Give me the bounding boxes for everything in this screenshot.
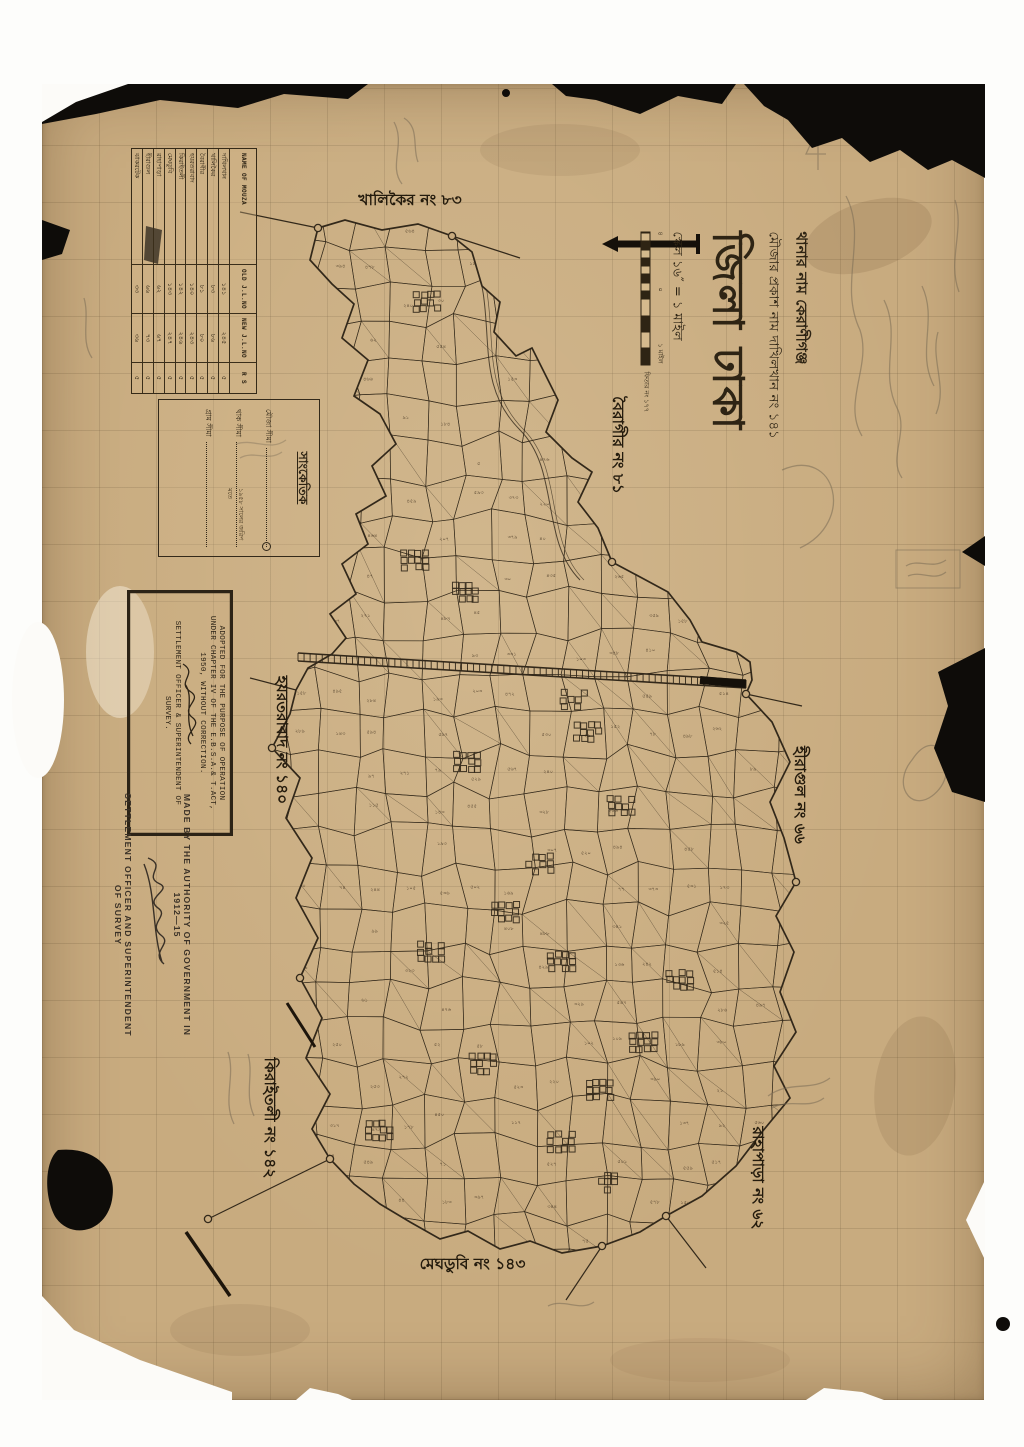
svg-text:৫৩১: ৫৩১ bbox=[687, 884, 697, 890]
svg-text:১৩৭: ১৩৭ bbox=[679, 1120, 689, 1126]
svg-text:৫৫৪: ৫৫৪ bbox=[436, 344, 446, 350]
svg-text:৫৫৯: ৫৫৯ bbox=[642, 694, 652, 700]
svg-text:৪৮৮: ৪৮৮ bbox=[540, 931, 550, 937]
svg-text:৩৯৭: ৩৯৭ bbox=[474, 1195, 484, 1201]
svg-text:৪২৯: ৪২৯ bbox=[538, 965, 548, 971]
table-cell: ঝাকরটেক bbox=[132, 149, 142, 264]
svg-text:১৫৬: ১৫৬ bbox=[265, 1274, 275, 1280]
legend-item: থাক সীমা১৯৫৮ সালের জরিপ মতে bbox=[231, 409, 243, 547]
table-cell: ৫ bbox=[186, 362, 196, 393]
svg-text:১০২: ১০২ bbox=[584, 1041, 594, 1047]
table-cell: খালিকৈর bbox=[208, 149, 218, 264]
table-cell: বৈরাগীর bbox=[197, 149, 207, 264]
svg-text:৫২: ৫২ bbox=[434, 1042, 441, 1048]
svg-text:১০৯: ১০৯ bbox=[612, 1036, 622, 1042]
svg-text:৫২৩: ৫২৩ bbox=[513, 1084, 523, 1090]
svg-text:৪৭৬: ৪৭৬ bbox=[540, 457, 550, 463]
table-cell: ৫ bbox=[165, 362, 175, 393]
svg-text:৩৬৩: ৩৬৩ bbox=[821, 885, 832, 891]
svg-text:৪৯৫: ৪৯৫ bbox=[332, 689, 342, 695]
svg-text:৪৭৬: ৪৭৬ bbox=[824, 418, 834, 424]
svg-text:১৭৮: ১৭৮ bbox=[404, 1125, 414, 1131]
legend-circle-symbol bbox=[263, 542, 272, 551]
svg-text:২৮৯: ২৮৯ bbox=[295, 728, 305, 734]
svg-text:৫৭৬: ৫৭৬ bbox=[304, 218, 314, 224]
svg-text:৩৯৪: ৩৯৪ bbox=[336, 263, 346, 269]
svg-text:১১৭: ১১৭ bbox=[511, 1120, 521, 1126]
svg-text:৫৬৭: ৫৬৭ bbox=[507, 767, 517, 773]
svg-text:৫০১: ৫০১ bbox=[617, 1159, 627, 1165]
table-cell: ৫ bbox=[176, 362, 186, 393]
svg-text:৫১০: ৫১০ bbox=[608, 302, 618, 308]
table-row: কিরাইতলী১৪২২৪৬৫ bbox=[176, 149, 187, 393]
table-cell: ৫ bbox=[197, 362, 207, 393]
neighbor-label-north: খালিকৈর নং ৮৩ bbox=[330, 188, 490, 214]
svg-text:৬২: ৬২ bbox=[370, 338, 377, 344]
svg-text:৪৬৬: ৪৬৬ bbox=[363, 376, 373, 382]
neighbor-label-southwest: কিরাইতলী নং ১৪২ bbox=[258, 1053, 282, 1183]
svg-text:৩০: ৩০ bbox=[504, 576, 511, 582]
authority-signature bbox=[138, 850, 172, 980]
table-cell: ১৪১ bbox=[219, 264, 229, 313]
svg-text:২১০: ২১০ bbox=[509, 227, 519, 233]
svg-text:৫৯০: ৫৯০ bbox=[825, 294, 835, 300]
legend-item: মৌজা সীমা bbox=[261, 409, 273, 547]
svg-text:৪৫০: ৪৫০ bbox=[434, 1112, 444, 1118]
svg-text:৪৩৫: ৪৩৫ bbox=[546, 573, 556, 579]
district-title: জিলা ঢাকা bbox=[689, 232, 760, 532]
svg-text:৫৬১: ৫৬১ bbox=[333, 1276, 343, 1282]
svg-text:৩৯০: ৩৯০ bbox=[788, 531, 798, 537]
svg-text:৫৯৪: ৫৯৪ bbox=[366, 730, 376, 736]
svg-text:২৪৪: ২৪৪ bbox=[370, 887, 380, 893]
svg-text:১১৮: ১১৮ bbox=[269, 376, 279, 382]
svg-text:১৪৩: ১৪৩ bbox=[435, 809, 445, 815]
legend-item-line bbox=[207, 442, 208, 547]
legend-item-line bbox=[267, 448, 268, 547]
svg-text:৫: ৫ bbox=[477, 461, 480, 467]
svg-text:৫৪৮: ৫৪৮ bbox=[757, 1239, 767, 1245]
svg-text:৪০: ৪০ bbox=[539, 536, 546, 542]
svg-text:১৫৪: ১৫৪ bbox=[714, 615, 724, 621]
stamp-line-1: ADOPTED FOR THE PURPOSE OF OPERATION bbox=[216, 596, 225, 830]
table-cell: ৫ bbox=[208, 362, 218, 393]
table-cell: ২৪৩ bbox=[186, 313, 196, 362]
mouza-table-block: NAME OF MOUZAOLD J.L.NONEW J.L.NOR Sদাখি… bbox=[133, 148, 257, 392]
svg-text:১২১: ১২১ bbox=[261, 846, 271, 852]
table-cell: হীরাগুল bbox=[143, 149, 153, 264]
svg-text:৮৮: ৮৮ bbox=[260, 964, 267, 970]
svg-text:২৪২: ২৪২ bbox=[642, 961, 652, 967]
legend-item-label: থাক সীমা bbox=[231, 409, 243, 437]
svg-text:৪৮৭: ৪৮৭ bbox=[441, 616, 451, 622]
svg-text:৪৯৭: ৪৯৭ bbox=[756, 1003, 766, 1009]
svg-text:৯২: ৯২ bbox=[818, 380, 825, 386]
table-cell: রাহাপাড়া bbox=[154, 149, 164, 264]
svg-text:৫৪৭: ৫৪৭ bbox=[617, 1000, 627, 1006]
svg-text:৫৩০: ৫৩০ bbox=[542, 732, 552, 738]
svg-text:৯১: ৯১ bbox=[402, 415, 409, 421]
svg-text:৫২৯: ৫২৯ bbox=[471, 777, 481, 783]
svg-text:১৫৩: ১৫৩ bbox=[508, 377, 518, 383]
svg-text:২৬৫: ২৬৫ bbox=[614, 574, 624, 580]
table-row: মেঘডুবি১৪৩২৪৭৫ bbox=[165, 149, 176, 393]
table-cell: ৮৩ bbox=[208, 264, 218, 313]
svg-text:১৩৬: ১৩৬ bbox=[614, 962, 624, 968]
svg-text:৫২৭: ৫২৭ bbox=[547, 1162, 557, 1168]
svg-text:৫১৪: ৫১৪ bbox=[719, 691, 729, 697]
legend-box: সাংকেতিক মৌজা সীমাথাক সীমা১৯৫৮ সালের জরি… bbox=[158, 399, 320, 557]
svg-text:৪০৮: ৪০৮ bbox=[504, 926, 514, 932]
table-cell: কিরাইতলী bbox=[176, 149, 186, 264]
svg-text:১৫: ১৫ bbox=[299, 1079, 306, 1085]
svg-text:১১২: ১১২ bbox=[328, 566, 338, 572]
svg-text:১৫৮: ১৫৮ bbox=[822, 1088, 832, 1094]
svg-text:২২০: ২২০ bbox=[549, 1079, 559, 1085]
svg-text:৪৬৪: ৪৬৪ bbox=[367, 533, 377, 539]
svg-text:২৫৩: ২৫৩ bbox=[370, 1084, 380, 1090]
svg-text:৪১৯: ৪১৯ bbox=[792, 648, 802, 654]
svg-text:২২০: ২২০ bbox=[540, 501, 550, 507]
svg-text:৩২৮: ৩২৮ bbox=[539, 810, 550, 816]
svg-text:৫৬৫: ৫৬৫ bbox=[611, 336, 621, 342]
svg-text:৪১৫: ৪১৫ bbox=[785, 1156, 795, 1162]
table-header: R S bbox=[230, 362, 256, 393]
svg-text:১৪৬: ১৪৬ bbox=[296, 582, 306, 588]
svg-text:৭৯: ৭৯ bbox=[435, 768, 442, 774]
svg-text:১৬৯: ১৬৯ bbox=[328, 1189, 338, 1195]
table-cell: ১৪৩ bbox=[165, 264, 175, 313]
svg-text:৫৪৯: ৫৪৯ bbox=[363, 1159, 373, 1165]
svg-text:১৩: ১৩ bbox=[680, 576, 687, 582]
legend-title: সাংকেতিক bbox=[291, 409, 311, 547]
neighbor-label-south: মেঘডুবি নং ১৪৩ bbox=[415, 1252, 530, 1278]
legend-item-line: ১৯৫৮ সালের জরিপ মতে bbox=[237, 442, 238, 547]
svg-text:২৭১: ২৭১ bbox=[400, 771, 410, 777]
svg-text:৩৭৪: ৩৭৪ bbox=[260, 218, 270, 224]
table-cell: ৭৩ bbox=[143, 313, 153, 362]
table-cell: হযরতরাবাদ bbox=[186, 149, 196, 264]
svg-text:২৬২: ২৬২ bbox=[712, 726, 722, 732]
scale-caption: স্কেল ১৬″ = ১ মাইল bbox=[666, 232, 687, 532]
svg-text:৫৬৪: ৫৬৪ bbox=[405, 228, 415, 234]
svg-text:২৯৫: ২৯৫ bbox=[332, 302, 342, 308]
svg-text:১৯৩: ১৯৩ bbox=[433, 696, 443, 702]
svg-text:২৭৭: ২৭৭ bbox=[331, 344, 341, 350]
stamp-line-2: UNDER CHAPTER IV OF THE E.B.S.A.& T.ACT, bbox=[206, 596, 215, 830]
svg-text:১৪৩: ১৪৩ bbox=[336, 731, 346, 737]
svg-text:৫৯৩: ৫৯৩ bbox=[474, 490, 484, 496]
svg-text:১৪০: ১৪০ bbox=[299, 924, 309, 930]
svg-text:১৮৯: ১৮৯ bbox=[675, 1042, 685, 1048]
svg-text:৪৭২: ৪৭২ bbox=[505, 691, 515, 697]
svg-text:১১১: ১১১ bbox=[680, 1272, 690, 1278]
svg-text:২৪০: ২৪০ bbox=[543, 769, 553, 775]
svg-text:১৭৩: ১৭৩ bbox=[720, 885, 730, 891]
svg-text:১৭৬: ১৭৬ bbox=[825, 533, 835, 539]
table-cell: ৫ bbox=[154, 362, 164, 393]
svg-text:৪১০: ৪১০ bbox=[645, 647, 655, 653]
svg-text:৩৬৮: ৩৬৮ bbox=[824, 850, 835, 856]
svg-text:৮৯: ৮৯ bbox=[750, 766, 757, 772]
stamp-line-3: 1950, WITHOUT CORRECTION. bbox=[197, 596, 206, 830]
svg-text:৪৯৪: ৪৯৪ bbox=[613, 845, 623, 851]
svg-text:৩৭৩: ৩৭৩ bbox=[509, 495, 520, 501]
svg-text:৫৫৯: ৫৫৯ bbox=[683, 1166, 693, 1172]
svg-text:২৭১: ২৭১ bbox=[361, 613, 371, 619]
table-row: রাহাপাড়া৬২৬৭৫ bbox=[154, 149, 165, 393]
svg-text:৩২৫: ৩২৫ bbox=[719, 921, 729, 927]
svg-text:৩৮৪: ৩৮৪ bbox=[502, 265, 512, 271]
svg-text:৫১৫: ৫১৫ bbox=[261, 304, 271, 310]
svg-text:৯১: ৯১ bbox=[747, 651, 754, 657]
svg-text:৩৩৬: ৩৩৬ bbox=[789, 1001, 800, 1007]
legend-item: গ্রাম সীমা bbox=[201, 409, 213, 547]
svg-text:২০৮: ২০৮ bbox=[437, 1242, 448, 1248]
table-cell: ৫ bbox=[132, 362, 142, 393]
svg-text:৪১৭: ৪১৭ bbox=[787, 611, 797, 617]
svg-text:১৫৮: ১৫৮ bbox=[297, 691, 307, 697]
svg-text:৪০৯: ৪০৯ bbox=[678, 223, 688, 229]
svg-text:৩২৩: ৩২৩ bbox=[405, 968, 416, 974]
svg-text:৩৭৩: ৩৭৩ bbox=[648, 887, 659, 893]
svg-text:২১: ২১ bbox=[717, 1088, 724, 1094]
svg-text:৫৫৭: ৫৫৭ bbox=[506, 297, 516, 303]
svg-text:১৫২: ১৫২ bbox=[611, 724, 621, 730]
svg-text:২৮৯: ২৮৯ bbox=[786, 1080, 796, 1086]
table-header: NEW J.L.NO bbox=[230, 313, 256, 362]
scale-note: ফিতার নং ১৭৭ bbox=[641, 372, 652, 412]
table-cell: ১৪০ bbox=[186, 264, 196, 313]
svg-text:৩১৭: ৩১৭ bbox=[330, 1123, 340, 1129]
table-cell: ৩৩ bbox=[132, 264, 142, 313]
svg-text:৪৭৮: ৪৭৮ bbox=[365, 264, 375, 270]
svg-text:১০: ১০ bbox=[785, 1198, 792, 1204]
svg-text:১৯৯: ১৯৯ bbox=[264, 1037, 274, 1043]
svg-text:২০৯: ২০৯ bbox=[818, 339, 828, 345]
svg-text:১০৫: ১০৫ bbox=[406, 886, 416, 892]
svg-text:৩৮০: ৩৮০ bbox=[717, 1040, 727, 1046]
legend-item-label: গ্রাম সীমা bbox=[201, 409, 213, 437]
svg-text:২০৩: ২০৩ bbox=[472, 689, 483, 695]
svg-text:৫২৮: ৫২৮ bbox=[647, 1274, 657, 1280]
svg-text:৩৫৮: ৩৫৮ bbox=[820, 608, 830, 614]
neighbor-label-southeast: রাহাপাড়া নং ৬২ bbox=[746, 1118, 770, 1238]
svg-text:৪৫৯: ৪৫৯ bbox=[407, 498, 417, 504]
svg-text:৪৯৫: ৪৯৫ bbox=[337, 500, 347, 506]
table-cell: মেঘডুবি bbox=[165, 149, 175, 264]
thana-name-line: থানার নাম কেরাণীগঞ্জ bbox=[788, 232, 813, 532]
svg-text:১০৩: ১০৩ bbox=[543, 268, 553, 274]
mouza-table: NAME OF MOUZAOLD J.L.NONEW J.L.NOR Sদাখি… bbox=[131, 148, 257, 394]
svg-text:৫৯৭: ৫৯৭ bbox=[438, 732, 448, 738]
mouza-name-line: মৌজার প্রকাশ নাম দাখিলখান নং ১৪১ bbox=[762, 232, 785, 532]
table-cell: দাখিলখান bbox=[219, 149, 229, 264]
svg-text:২৬১: ২৬১ bbox=[298, 1118, 308, 1124]
svg-text:১৭৯: ১৭৯ bbox=[827, 960, 837, 966]
svg-text:৫০২: ৫০২ bbox=[470, 885, 480, 891]
svg-text:৪০৬: ৪০৬ bbox=[263, 883, 273, 889]
svg-text:২১৭: ২১৭ bbox=[784, 687, 794, 693]
svg-text:৮৭: ৮৭ bbox=[829, 1279, 836, 1285]
table-cell: ৫ bbox=[219, 362, 229, 393]
svg-text:৫৩৬: ৫৩৬ bbox=[440, 890, 450, 896]
scanned-map-page: ৩৭৪৫১৫১১৮৫৮২৪৭৮৩১০১২১৪০৬৮৮১৯৯১০৩১৫৬৫৭৬৫৪… bbox=[0, 0, 1024, 1447]
railway-line bbox=[298, 653, 746, 688]
table-cell: ৩৬ bbox=[132, 313, 142, 362]
svg-text:৬৮: ৬৮ bbox=[791, 724, 798, 730]
svg-text:২০৭: ২০৭ bbox=[439, 537, 449, 543]
svg-text:৯৩: ৯৩ bbox=[472, 653, 479, 659]
svg-text:৫৭৮: ৫৭৮ bbox=[650, 1199, 660, 1205]
svg-text:২৪০: ২৪০ bbox=[403, 303, 413, 309]
table-row: বৈরাগীর৮১৮০৫ bbox=[197, 149, 208, 393]
svg-text:৫২০: ৫২০ bbox=[581, 850, 591, 856]
authority-line-1: MADE BY THE AUTHORITY OF GOVERNMENT IN 1… bbox=[172, 787, 192, 1043]
svg-text:৭১: ৭১ bbox=[440, 1161, 447, 1167]
svg-text:৩৭৯: ৩৭৯ bbox=[508, 534, 518, 540]
svg-text:৪৫৫: ৪৫৫ bbox=[467, 803, 477, 809]
svg-text:২৮৪: ২৮৪ bbox=[366, 698, 376, 704]
neighbor-label-east: হীরাগুল নং ৬৬ bbox=[788, 740, 812, 850]
scale-bar bbox=[641, 232, 651, 366]
svg-text:৩০৫: ৩০৫ bbox=[295, 380, 305, 386]
svg-text:৫১৭: ৫১৭ bbox=[711, 1159, 721, 1165]
legend-item-label: মৌজা সীমা bbox=[261, 409, 273, 443]
svg-text:১৬২: ১৬২ bbox=[573, 267, 583, 273]
svg-text:১০৩: ১০৩ bbox=[576, 657, 586, 663]
svg-text:৭৫: ৭৫ bbox=[582, 1238, 589, 1244]
svg-text:৩১০: ৩১০ bbox=[258, 574, 268, 580]
neighbor-label-northeast: বৈরাগীর নং ৮১ bbox=[606, 390, 630, 500]
svg-text:২৫০: ২৫০ bbox=[332, 1042, 342, 1048]
svg-text:১৯২: ১৯২ bbox=[540, 299, 550, 305]
svg-text:৪২০: ৪২০ bbox=[367, 1233, 377, 1239]
svg-text:৩০: ৩০ bbox=[438, 298, 445, 304]
table-cell: ১৪২ bbox=[176, 264, 186, 313]
svg-text:৪৫: ৪৫ bbox=[474, 610, 481, 616]
table-cell: ২৪৬ bbox=[176, 313, 186, 362]
svg-text:৩৮১: ৩৮১ bbox=[295, 1196, 305, 1202]
svg-text:১৮৩: ১৮৩ bbox=[442, 1199, 452, 1205]
svg-text:৭৭: ৭৭ bbox=[618, 886, 625, 892]
table-header: OLD J.L.NO bbox=[230, 264, 256, 313]
svg-text:৭৮: ৭৮ bbox=[650, 731, 657, 737]
svg-text:৭৪: ৭৪ bbox=[339, 885, 346, 891]
svg-text:৩৪৮: ৩৪৮ bbox=[609, 651, 619, 657]
svg-text:৩৩১: ৩৩১ bbox=[507, 652, 517, 658]
svg-text:৫৩১: ৫৩১ bbox=[724, 222, 734, 228]
svg-text:১৯৩: ১৯৩ bbox=[437, 841, 447, 847]
svg-text:৯৭: ৯৭ bbox=[368, 774, 375, 780]
svg-text:১৯২: ১৯২ bbox=[332, 418, 342, 424]
svg-text:৯২: ৯২ bbox=[719, 1123, 726, 1129]
svg-text:৩৩৭: ৩৩৭ bbox=[711, 1244, 721, 1250]
table-cell: ২৪৭ bbox=[165, 313, 175, 362]
table-row: হীরাগুল৬৬৭৩৫ bbox=[143, 149, 154, 393]
table-header: NAME OF MOUZA bbox=[230, 149, 256, 264]
table-cell: ৬৬ bbox=[143, 264, 153, 313]
svg-text:৫৩: ৫৩ bbox=[333, 528, 340, 534]
table-row: দাখিলখান১৪১২৪৫৫ bbox=[219, 149, 230, 393]
svg-text:৪৫৮: ৪৫৮ bbox=[684, 847, 694, 853]
table-cell: ৮৬ bbox=[208, 313, 218, 362]
svg-text:৪৫২: ৪৫২ bbox=[578, 340, 588, 346]
svg-text:২৮৬: ২৮৬ bbox=[717, 1007, 727, 1013]
table-cell: ৫ bbox=[143, 362, 153, 393]
svg-text:১৯৫: ১৯৫ bbox=[581, 415, 591, 421]
svg-text:৪৪: ৪৪ bbox=[398, 1198, 405, 1204]
svg-text:২৭২: ২৭২ bbox=[399, 1075, 409, 1081]
svg-text:৩২৯: ৩২৯ bbox=[574, 1002, 584, 1008]
table-cell: ৮০ bbox=[197, 313, 207, 362]
scale-bar-ticks: ৪০১ মাইল bbox=[655, 232, 666, 364]
svg-text:৩৪১: ৩৪১ bbox=[612, 924, 622, 930]
svg-text:১১৫: ১১৫ bbox=[369, 803, 379, 809]
authority-line-2: SETTLEMENT OFFICER AND SUPERINTENDENT OF… bbox=[113, 787, 133, 1043]
svg-text:৪৯৮: ৪৯৮ bbox=[683, 733, 693, 739]
svg-text:২৩০: ২৩০ bbox=[756, 688, 766, 694]
table-cell: ৮১ bbox=[197, 264, 207, 313]
table-cell: ২৪৫ bbox=[219, 313, 229, 362]
svg-text:৮২: ৮২ bbox=[613, 538, 620, 544]
svg-text:৩৪৪: ৩৪৪ bbox=[547, 1204, 557, 1210]
svg-text:৪১৭: ৪১৭ bbox=[827, 693, 837, 699]
svg-text:৯৯: ৯৯ bbox=[371, 928, 378, 934]
svg-text:৪৭: ৪৭ bbox=[367, 573, 374, 579]
svg-text:২০৩: ২০৩ bbox=[338, 373, 349, 379]
svg-text:১১৫: ১১৫ bbox=[544, 228, 554, 234]
table-row: খালিকৈর৮৩৮৬৫ bbox=[208, 149, 219, 393]
table-cell: ৬২ bbox=[154, 264, 164, 313]
svg-text:৩৯৯: ৩৯৯ bbox=[363, 1279, 373, 1285]
svg-text:২৩৬: ২৩৬ bbox=[578, 300, 589, 306]
table-row: ঝাকরটেক৩৩৩৬৫ bbox=[132, 149, 143, 393]
legend-item-note: ১৯৫৮ সালের জরিপ মতে bbox=[225, 488, 247, 547]
svg-text:৫১৪: ৫১৪ bbox=[713, 969, 723, 975]
svg-text:৩৫৯: ৩৫৯ bbox=[649, 613, 659, 619]
svg-text:৪৭৬: ৪৭৬ bbox=[441, 1007, 451, 1013]
svg-text:৬১: ৬১ bbox=[361, 998, 368, 1004]
svg-text:৩৩৬: ৩৩৬ bbox=[645, 539, 656, 545]
svg-text:১৫৮: ১৫৮ bbox=[678, 618, 688, 624]
neighbor-label-west: হযরতরাবাদ নং ১৪০ bbox=[270, 670, 294, 810]
svg-text:১৮৪: ১৮৪ bbox=[441, 422, 451, 428]
svg-text:৫৮: ৫৮ bbox=[476, 1044, 483, 1050]
table-row: হযরতরাবাদ১৪০২৪৩৫ bbox=[186, 149, 197, 393]
authority-note: MADE BY THE AUTHORITY OF GOVERNMENT IN 1… bbox=[100, 787, 192, 1043]
svg-text:৫৪৫: ৫৪৫ bbox=[297, 304, 307, 310]
title-block: থানার নাম কেরাণীগঞ্জ মৌজার প্রকাশ নাম দা… bbox=[638, 232, 813, 532]
table-cell: ৬৭ bbox=[154, 313, 164, 362]
svg-text:১৬৯: ১৬৯ bbox=[504, 890, 514, 896]
svg-text:২৯৮: ২৯৮ bbox=[574, 375, 584, 381]
svg-text:৩৯০: ৩৯০ bbox=[650, 1076, 660, 1082]
